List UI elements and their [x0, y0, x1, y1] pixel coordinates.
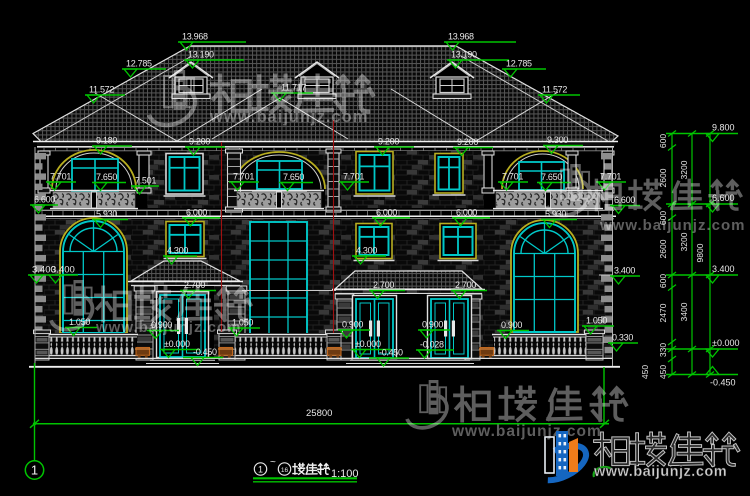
svg-text:6.600: 6.600 [34, 195, 55, 205]
svg-text:7.701: 7.701 [502, 172, 523, 182]
svg-text:2.700: 2.700 [373, 280, 394, 290]
svg-text:3.400: 3.400 [614, 266, 635, 276]
svg-text:13.968: 13.968 [182, 32, 208, 42]
svg-text:0.900: 0.900 [422, 320, 443, 330]
svg-text:450: 450 [640, 365, 650, 379]
svg-text:4.300: 4.300 [167, 246, 188, 256]
svg-text:9.300: 9.300 [547, 135, 568, 145]
svg-text:25800: 25800 [306, 408, 332, 419]
svg-text:3.400: 3.400 [712, 264, 735, 274]
svg-text:www.baijunjz.com: www.baijunjz.com [209, 108, 368, 126]
svg-text:16: 16 [281, 467, 289, 474]
svg-text:3200: 3200 [679, 232, 689, 251]
svg-text:1: 1 [258, 465, 263, 475]
svg-text:330: 330 [658, 343, 668, 357]
svg-text:0.330: 0.330 [612, 333, 633, 343]
svg-text:3.400: 3.400 [51, 265, 75, 276]
svg-text:13.968: 13.968 [448, 32, 474, 42]
svg-text:4.300: 4.300 [356, 246, 377, 256]
svg-text:450: 450 [658, 365, 668, 379]
svg-text:www.baijunjz.com: www.baijunjz.com [593, 464, 727, 480]
svg-text:6.000: 6.000 [186, 207, 207, 217]
svg-text:5.930: 5.930 [96, 209, 117, 219]
svg-text:9.200: 9.200 [457, 137, 478, 147]
svg-text:-0.450: -0.450 [710, 378, 736, 388]
svg-text:-0.450: -0.450 [193, 347, 217, 357]
svg-text:13.190: 13.190 [188, 50, 214, 60]
svg-text:www.baijunjz.com: www.baijunjz.com [451, 423, 602, 440]
svg-text:7.501: 7.501 [135, 176, 156, 186]
svg-text:9.180: 9.180 [96, 136, 117, 146]
svg-text:www.baijunjz.com: www.baijunjz.com [95, 319, 241, 336]
svg-text:7.701: 7.701 [233, 172, 254, 182]
svg-text:±0.000: ±0.000 [164, 339, 190, 349]
svg-text:7.701: 7.701 [50, 172, 71, 182]
svg-text:7.650: 7.650 [96, 172, 117, 182]
svg-text:600: 600 [658, 134, 668, 148]
svg-text:2470: 2470 [658, 303, 668, 322]
svg-text:3400: 3400 [679, 302, 689, 321]
svg-text:12.785: 12.785 [506, 59, 532, 69]
svg-text:600: 600 [658, 274, 668, 288]
svg-text:6.000: 6.000 [456, 207, 477, 217]
svg-text:7.701: 7.701 [343, 172, 364, 182]
svg-text:1: 1 [31, 463, 38, 478]
svg-text:9.200: 9.200 [378, 137, 399, 147]
svg-text:www.baijunjz.com: www.baijunjz.com [599, 217, 745, 234]
svg-text:13.190: 13.190 [451, 50, 477, 60]
svg-text:9.800: 9.800 [712, 123, 735, 133]
svg-text:12.785: 12.785 [126, 59, 152, 69]
svg-text:11.572: 11.572 [542, 85, 567, 95]
svg-text:±0.000: ±0.000 [712, 338, 739, 348]
svg-text:7.650: 7.650 [541, 172, 562, 182]
svg-text:11.572: 11.572 [89, 85, 114, 95]
svg-text:3200: 3200 [679, 160, 689, 179]
svg-text:-0.028: -0.028 [420, 340, 444, 350]
svg-text:2600: 2600 [658, 239, 668, 258]
svg-text:2.700: 2.700 [455, 280, 476, 290]
svg-text:9800: 9800 [695, 243, 705, 262]
svg-text:~: ~ [270, 457, 276, 468]
svg-text:7.650: 7.650 [283, 172, 304, 182]
svg-text:0.900: 0.900 [342, 320, 363, 330]
svg-text:7.701: 7.701 [600, 172, 621, 182]
svg-text:-0.450: -0.450 [379, 348, 403, 358]
svg-text:9.200: 9.200 [189, 137, 210, 147]
svg-text:0.900: 0.900 [501, 320, 522, 330]
svg-text:1.050: 1.050 [586, 316, 607, 326]
svg-text:±0.000: ±0.000 [355, 339, 381, 349]
svg-text:6.000: 6.000 [376, 207, 397, 217]
